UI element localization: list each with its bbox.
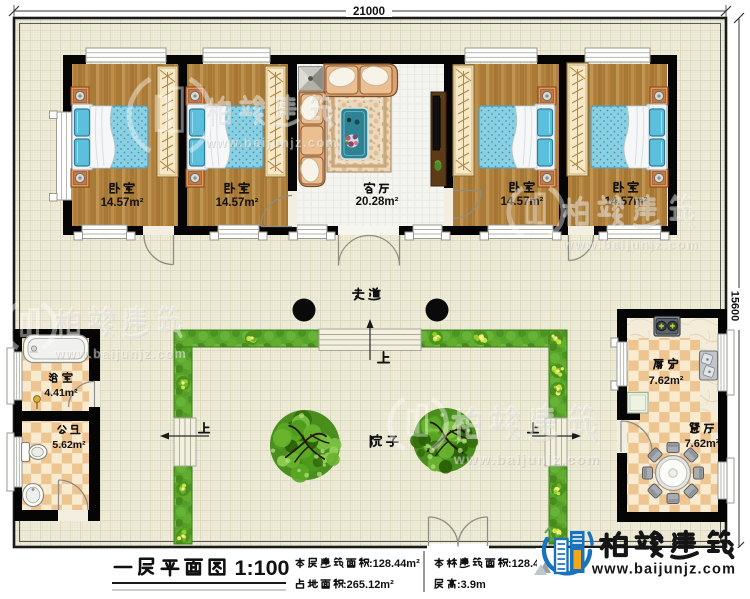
svg-text:14.57m²: 14.57m² bbox=[216, 197, 259, 209]
svg-text:14.57m²: 14.57m² bbox=[101, 197, 144, 209]
svg-text::3.9m: :3.9m bbox=[457, 579, 486, 591]
svg-text::265.12m²: :265.12m² bbox=[343, 579, 394, 591]
svg-text:www.baijunjz.com: www.baijunjz.com bbox=[54, 347, 188, 361]
svg-text:5.62m²: 5.62m² bbox=[52, 439, 86, 451]
svg-text:7.62m²: 7.62m² bbox=[685, 438, 720, 450]
svg-text:1:100: 1:100 bbox=[235, 556, 290, 580]
svg-text:7.62m²: 7.62m² bbox=[649, 375, 684, 387]
svg-text:15600: 15600 bbox=[729, 291, 741, 322]
svg-text:www.baijunjz.com: www.baijunjz.com bbox=[205, 136, 339, 150]
svg-text:www.baijunjz.com: www.baijunjz.com bbox=[453, 452, 601, 468]
svg-text:www.baijunjz.com: www.baijunjz.com bbox=[562, 237, 699, 252]
svg-text:4.41m²: 4.41m² bbox=[44, 387, 78, 399]
svg-text:www.baijunjz.com: www.baijunjz.com bbox=[591, 562, 736, 578]
svg-text:21000: 21000 bbox=[353, 6, 385, 18]
svg-text:20.28m²: 20.28m² bbox=[356, 196, 399, 208]
svg-text::128.44m²: :128.44m² bbox=[369, 558, 420, 570]
